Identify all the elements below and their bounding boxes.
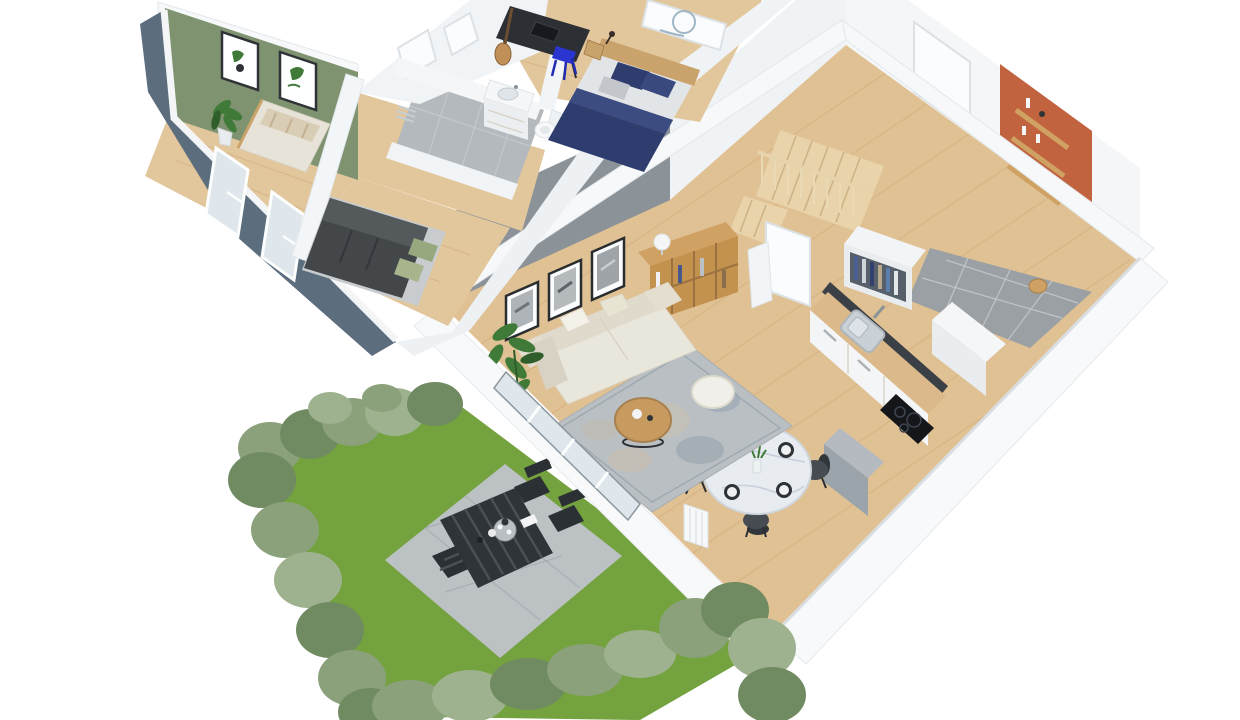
plate xyxy=(488,529,496,537)
tray-table xyxy=(494,519,516,542)
pouf xyxy=(692,376,734,408)
cup xyxy=(477,537,483,543)
wood-stool xyxy=(1029,279,1047,293)
floorplan-render xyxy=(0,0,1240,720)
radiator xyxy=(684,504,708,548)
coffee-table xyxy=(615,398,671,447)
floorplan-svg xyxy=(0,0,1240,720)
